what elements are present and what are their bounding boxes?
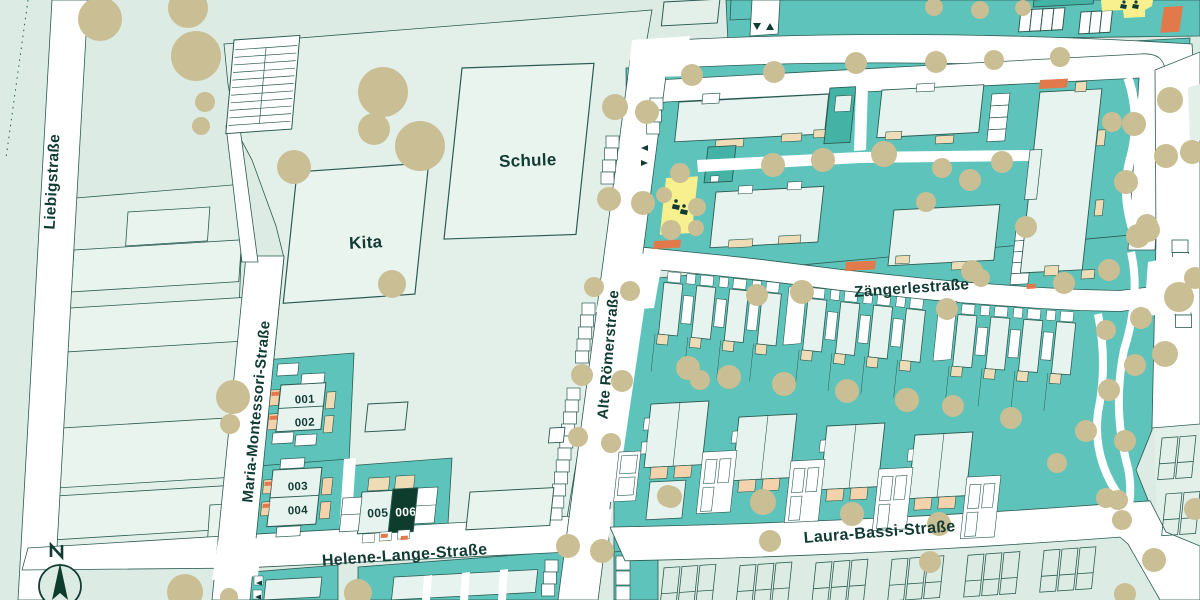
svg-text:Schule: Schule bbox=[499, 150, 557, 171]
svg-text:001: 001 bbox=[294, 393, 315, 406]
svg-text:005: 005 bbox=[367, 505, 389, 520]
svg-text:002: 002 bbox=[294, 416, 315, 429]
svg-text:Kita: Kita bbox=[349, 232, 384, 253]
svg-text:006: 006 bbox=[395, 504, 417, 519]
svg-text:004: 004 bbox=[287, 504, 308, 517]
svg-text:003: 003 bbox=[287, 480, 308, 493]
